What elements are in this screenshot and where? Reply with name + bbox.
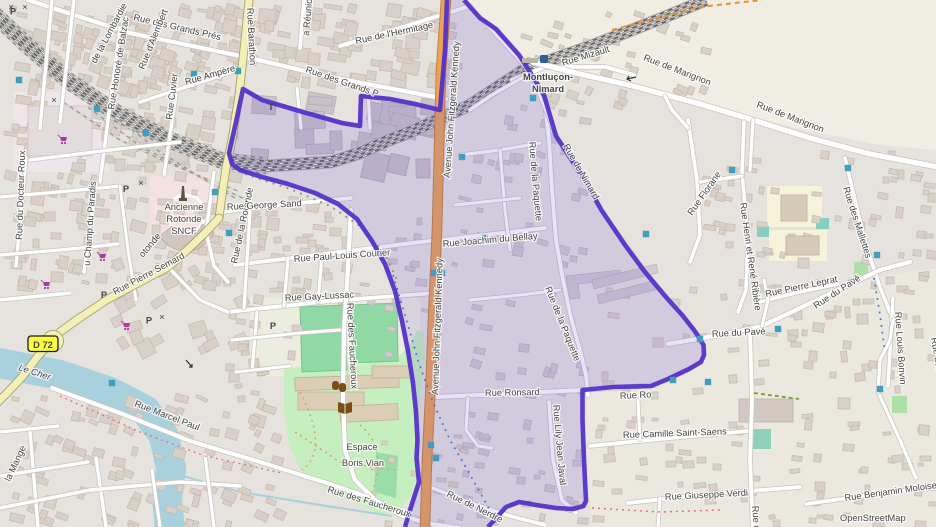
svg-text:Rotonde: Rotonde xyxy=(166,214,201,224)
svg-text:Rue de: Rue de xyxy=(750,505,763,527)
svg-text:P: P xyxy=(270,321,276,331)
svg-text:P: P xyxy=(146,316,152,326)
svg-text:Nimard: Nimard xyxy=(532,84,564,94)
svg-text:×: × xyxy=(8,2,13,12)
svg-text:T: T xyxy=(268,102,274,112)
svg-text:Montluçon-: Montluçon- xyxy=(523,72,573,82)
svg-text:OpenStreetMap: OpenStreetMap xyxy=(840,513,906,523)
svg-text:×: × xyxy=(22,2,27,12)
svg-text:Ancienne: Ancienne xyxy=(165,202,204,212)
svg-text:D 72: D 72 xyxy=(33,340,53,350)
svg-text:×: × xyxy=(138,178,143,188)
svg-text:P: P xyxy=(123,184,129,194)
svg-text:Rue Ronsard: Rue Ronsard xyxy=(485,387,540,398)
svg-text:P: P xyxy=(101,290,107,300)
svg-text:SNCF: SNCF xyxy=(171,226,197,236)
svg-text:Rue Ro: Rue Ro xyxy=(620,389,652,401)
svg-text:×: × xyxy=(159,312,164,322)
svg-text:Espace: Espace xyxy=(346,442,377,452)
svg-text:Boris Vian: Boris Vian xyxy=(342,458,384,468)
svg-text:×: × xyxy=(51,95,56,105)
